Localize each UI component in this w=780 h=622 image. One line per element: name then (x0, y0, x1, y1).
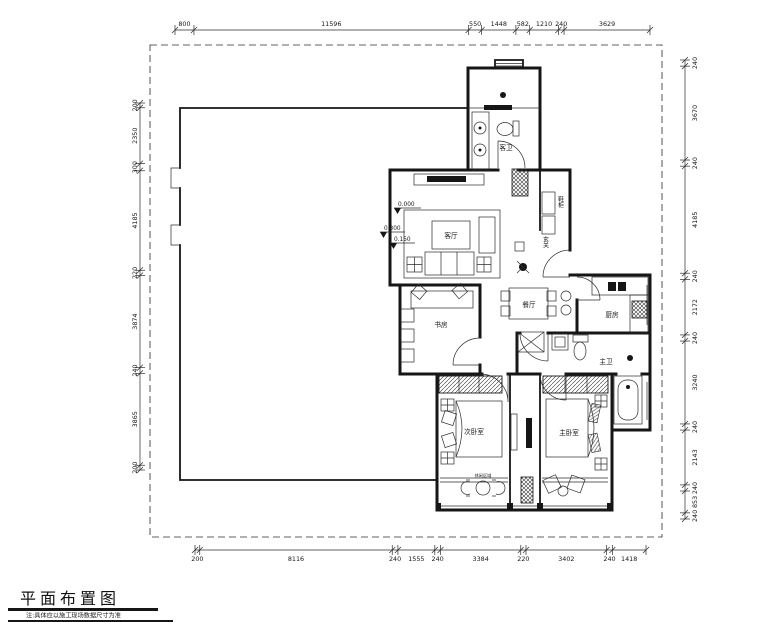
label-leisure: 休闲区域 (475, 472, 493, 479)
dimension-label: 1210 (536, 20, 552, 28)
stool-icon (515, 242, 524, 251)
level-marker-icon (380, 232, 387, 238)
round-chair-icon (561, 305, 571, 315)
stove-icon (608, 282, 616, 291)
site-boundary (150, 45, 662, 537)
guest-bath (468, 92, 540, 170)
round-table-icon (476, 481, 490, 495)
pillow-icon (441, 410, 456, 425)
room-label-kitchen: 厨房 (605, 310, 619, 319)
tv-icon (427, 176, 466, 182)
elevation-label: 0.000 (398, 202, 415, 208)
elevation-markers: 0.000 0.300 0.150 (380, 202, 421, 249)
level-marker-icon (394, 208, 401, 214)
wardrobe-icon (439, 376, 502, 393)
dimension-label: 240 (389, 555, 401, 563)
drape-icon (588, 433, 601, 452)
chair-icon (501, 291, 510, 301)
dimension-label: 582 (517, 20, 529, 28)
bathtub-room (614, 376, 642, 424)
room-label-master-bedroom: 主卧室 (559, 428, 579, 437)
round-table-icon (558, 486, 568, 496)
room-label-second-bedroom: 次卧室 (464, 427, 484, 436)
room-label-entry: 玄关 (542, 235, 549, 249)
room-label-study: 书房 (434, 320, 448, 329)
dimension-label: 240 (691, 270, 699, 282)
dimension-label: 240 (691, 421, 699, 433)
tv-icon (526, 418, 532, 448)
stove-icon (618, 282, 626, 291)
dimension-label: 8116 (288, 555, 304, 563)
dimension-label: 3629 (599, 20, 615, 28)
dimension-label: 11596 (321, 20, 341, 28)
dimension-label: 3874 (131, 313, 139, 329)
floor-drain-icon (500, 92, 506, 98)
master-bath-furniture (518, 332, 633, 361)
dimension-chains: 8001159655014485821210240362920081162401… (131, 20, 699, 563)
dimension-label: 240 (691, 57, 699, 69)
toilet-icon (497, 123, 513, 136)
daybed-icon (411, 291, 473, 308)
chair-icon (543, 475, 562, 494)
living-room-furniture (404, 174, 500, 278)
title-block: 平面布置图 注:具体应以施工现场数据尺寸为准 (8, 589, 173, 622)
pillow-icon (441, 432, 456, 447)
dimension-label: 200 (131, 99, 139, 111)
dimension-label: 3384 (473, 555, 489, 563)
elevation-label: 0.300 (384, 226, 401, 232)
dimension-label: 1555 (408, 555, 424, 563)
dimension-label: 800 (178, 20, 190, 28)
sink-icon (552, 334, 568, 350)
room-label-dining: 餐厅 (522, 300, 536, 309)
round-chair-icon (561, 291, 571, 301)
wardrobe-icon (543, 376, 608, 393)
dimension-label: 3402 (558, 555, 574, 563)
dimension-label: 240 (691, 510, 699, 522)
drawing-title: 平面布置图 (20, 589, 120, 608)
toilet-icon (573, 335, 588, 342)
chair-icon (401, 349, 414, 362)
dining-furniture (501, 288, 571, 319)
dimension-label: 200 (191, 555, 203, 563)
chair-icon (401, 309, 414, 322)
dimension-label: 2350 (131, 128, 139, 144)
tv-cabinet-icon (511, 414, 517, 450)
floor-drain-icon (627, 355, 633, 361)
dimension-label: 3670 (691, 105, 699, 121)
dimension-label: 2143 (691, 449, 699, 465)
elevation-label: 0.150 (394, 237, 411, 243)
dimension-label: 3240 (691, 374, 699, 390)
dimension-label: 240 (432, 555, 444, 563)
dimension-label: 240 (603, 555, 615, 563)
dimension-label: 240 (691, 332, 699, 344)
sofa-icon (425, 252, 474, 275)
dimension-label: 220 (517, 555, 529, 563)
dimension-label: 1448 (491, 20, 507, 28)
dimension-label: 1418 (621, 555, 637, 563)
dimension-label: 550 (469, 20, 481, 28)
label-shoe-cabinet: 鞋柜 (557, 195, 564, 209)
dimension-label: 4185 (691, 212, 699, 228)
tv-cabinet-icon (479, 217, 495, 253)
dimension-label: 220 (131, 267, 139, 279)
chair-icon (401, 329, 414, 342)
chair-icon (501, 306, 510, 316)
title-underline (8, 608, 158, 611)
shoe-cabinet-icon (542, 216, 555, 234)
rug (404, 210, 500, 278)
second-bedroom-furniture (439, 376, 532, 464)
drape-icon (588, 403, 601, 422)
shoe-cabinet-icon (542, 192, 555, 214)
dimension-label: 200 (131, 462, 139, 474)
dimension-label: 2172 (691, 299, 699, 315)
column-hatch (512, 169, 647, 503)
drawing-note: 注:具体应以施工现场数据尺寸为准 (26, 612, 121, 620)
floor-plan-canvas: 0.000 0.300 0.150 客卫 客厅 玄关 鞋柜 餐厅 厨房 主卫 书… (0, 0, 780, 622)
bed-icon (546, 399, 588, 457)
dimension-label: 240 (131, 364, 139, 376)
dimension-label: 240 (691, 157, 699, 169)
shower-screen (484, 105, 512, 110)
dimension-label: 853 (691, 496, 699, 508)
dimension-label: 300 (131, 161, 139, 173)
dimension-label: 240 (691, 482, 699, 494)
dimension-label: 240 (555, 20, 567, 28)
terrace-outline (171, 108, 468, 480)
dimension-label: 4185 (131, 212, 139, 228)
room-label-guest-bath: 客卫 (499, 143, 513, 152)
room-label-master-bath: 主卫 (599, 357, 613, 366)
vanity-counter (472, 112, 489, 170)
entry-hall (515, 192, 555, 273)
second-balcony (461, 480, 505, 496)
room-label-living: 客厅 (444, 231, 458, 240)
dimension-label: 3865 (131, 411, 139, 427)
